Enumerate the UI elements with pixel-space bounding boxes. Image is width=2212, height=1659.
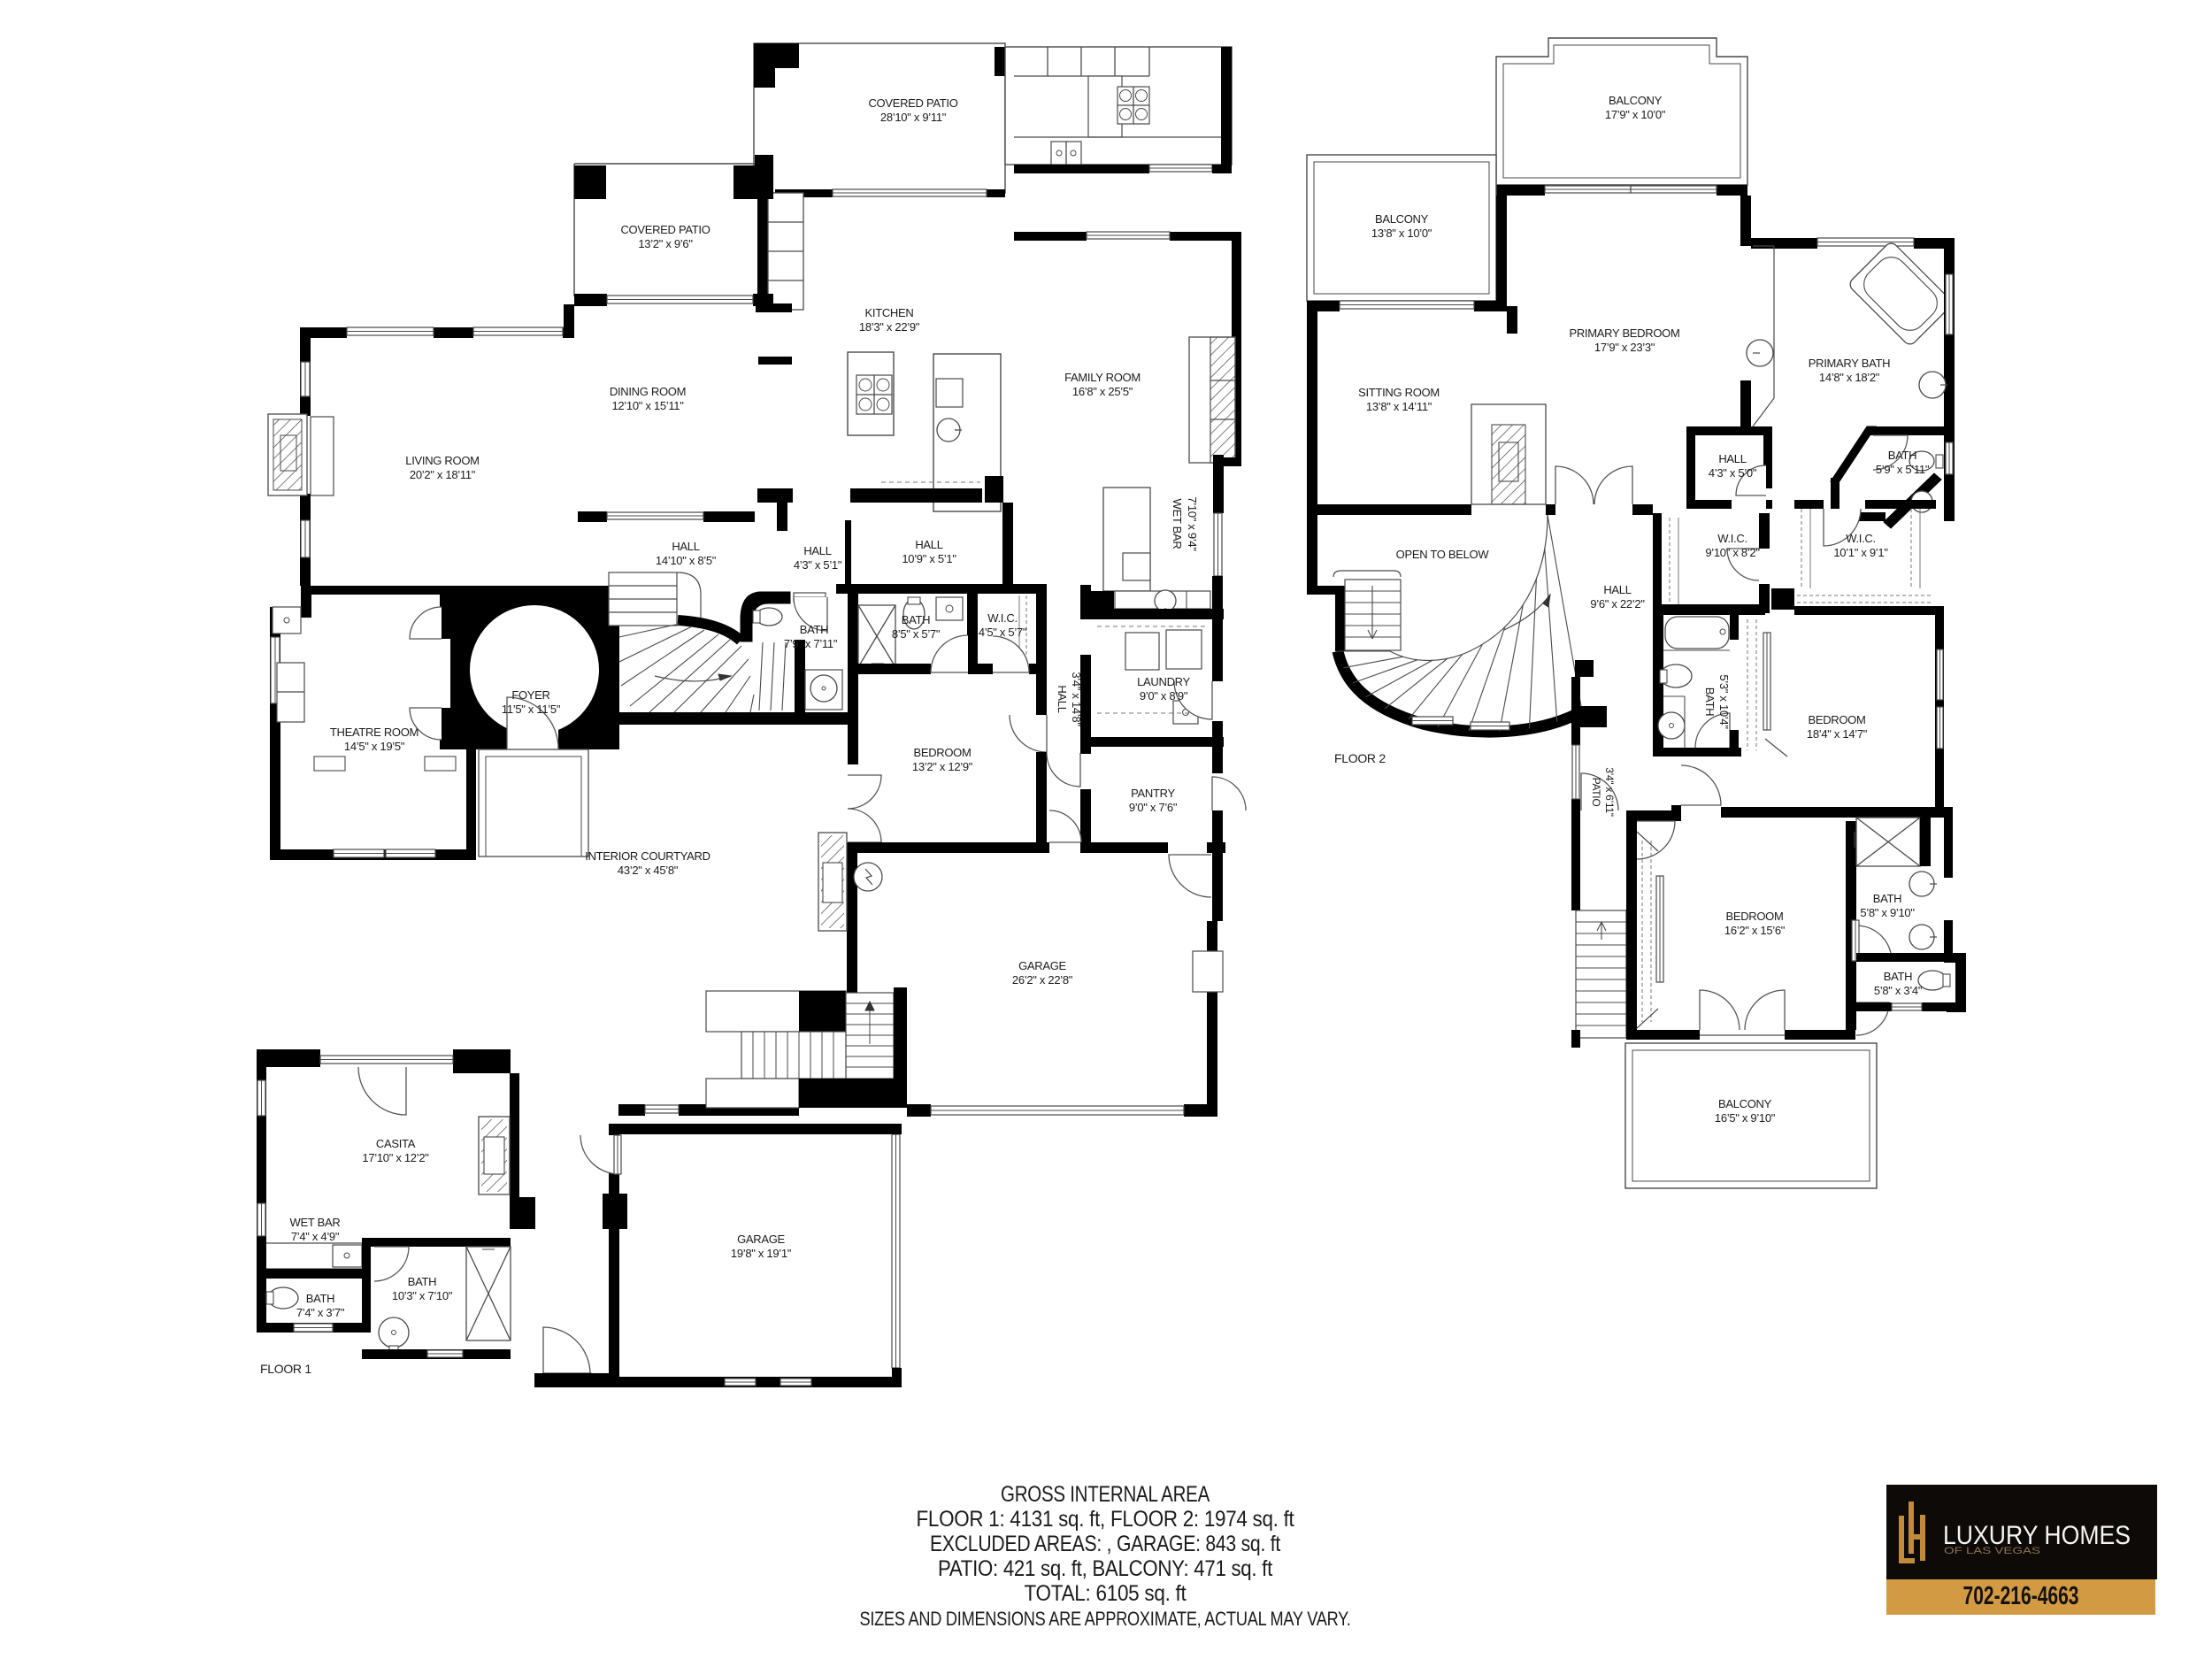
svg-text:BEDROOM: BEDROOM — [1725, 910, 1783, 923]
svg-text:KITCHEN: KITCHEN — [865, 306, 914, 319]
svg-text:BATH: BATH — [800, 623, 829, 636]
svg-text:DINING ROOM: DINING ROOM — [610, 385, 686, 398]
svg-text:FLOOR 1: FLOOR 1 — [260, 1362, 311, 1376]
svg-text:7’9" x 7’11": 7’9" x 7’11" — [784, 637, 838, 650]
svg-text:BATH: BATH — [902, 613, 931, 626]
svg-text:FLOOR 2: FLOOR 2 — [1334, 751, 1386, 765]
svg-text:5’8" x 9’10": 5’8" x 9’10" — [1860, 906, 1915, 919]
svg-text:BALCONY: BALCONY — [1609, 94, 1663, 107]
svg-text:OF LAS VEGAS: OF LAS VEGAS — [1944, 1546, 2040, 1556]
svg-text:20’2" x 18’11": 20’2" x 18’11" — [410, 468, 476, 481]
svg-text:HALL: HALL — [915, 538, 942, 551]
svg-text:14’8" x 18’2": 14’8" x 18’2" — [1819, 371, 1880, 384]
svg-text:7’10" x 9’4": 7’10" x 9’4" — [1186, 496, 1199, 551]
svg-text:5’8" x 3’4": 5’8" x 3’4" — [1874, 984, 1923, 997]
svg-text:EXCLUDED AREAS: , GARAGE: 843: EXCLUDED AREAS: , GARAGE: 843 sq. ft — [930, 1532, 1280, 1556]
svg-text:PRIMARY BEDROOM: PRIMARY BEDROOM — [1569, 326, 1679, 340]
svg-text:16’8" x 25’5": 16’8" x 25’5" — [1072, 385, 1133, 398]
svg-text:13’2" x 12’9": 13’2" x 12’9" — [912, 760, 973, 773]
svg-text:9’0" x 7’6": 9’0" x 7’6" — [1129, 801, 1178, 814]
svg-text:TOTAL: 6105 sq. ft: TOTAL: 6105 sq. ft — [1025, 1581, 1187, 1606]
svg-text:702-216-4663: 702-216-4663 — [1963, 1582, 2079, 1610]
svg-text:FLOOR 1: 4131 sq. ft, FLOOR 2:: FLOOR 1: 4131 sq. ft, FLOOR 2: 1974 sq. … — [917, 1507, 1294, 1532]
svg-text:4’3" x 5’1": 4’3" x 5’1" — [794, 558, 842, 572]
svg-text:18’4" x 14’7": 18’4" x 14’7" — [1807, 727, 1868, 741]
svg-text:COVERED PATIO: COVERED PATIO — [868, 96, 957, 110]
svg-text:SITTING ROOM: SITTING ROOM — [1358, 386, 1440, 399]
svg-text:HALL: HALL — [1056, 685, 1069, 712]
svg-text:28’10" x 9’11": 28’10" x 9’11" — [880, 111, 947, 124]
svg-text:9’6" x 22’2": 9’6" x 22’2" — [1590, 597, 1645, 611]
svg-text:GARAGE: GARAGE — [737, 1233, 785, 1246]
svg-text:11’5" x 11’5": 11’5" x 11’5" — [502, 703, 561, 716]
svg-text:19’8" x 19’1": 19’8" x 19’1" — [731, 1247, 792, 1260]
svg-text:12’10" x 15’11": 12’10" x 15’11" — [611, 399, 684, 412]
svg-text:OPEN TO BELOW: OPEN TO BELOW — [1396, 548, 1490, 561]
svg-text:17’10" x 12’2": 17’10" x 12’2" — [362, 1151, 429, 1164]
svg-text:3’4" x 14’8": 3’4" x 14’8" — [1070, 672, 1083, 726]
svg-text:10’3" x 7’10": 10’3" x 7’10" — [392, 1289, 453, 1302]
svg-text:BATH: BATH — [1884, 970, 1913, 983]
svg-text:INTERIOR COURTYARD: INTERIOR COURTYARD — [585, 849, 710, 863]
svg-text:4’5" x 5’7": 4’5" x 5’7" — [979, 626, 1027, 639]
svg-text:9’0" x 8’9": 9’0" x 8’9" — [1140, 689, 1188, 703]
svg-text:W.I.C.: W.I.C. — [987, 611, 1018, 625]
svg-text:FAMILY ROOM: FAMILY ROOM — [1064, 371, 1141, 384]
svg-text:PATIO: PATIO — [1590, 778, 1602, 807]
svg-text:PANTRY: PANTRY — [1131, 787, 1175, 800]
svg-text:GARAGE: GARAGE — [1018, 959, 1066, 972]
svg-text:GROSS INTERNAL AREA: GROSS INTERNAL AREA — [1001, 1482, 1210, 1507]
svg-text:COVERED PATIO: COVERED PATIO — [620, 223, 710, 236]
svg-text:43’2" x 45’8": 43’2" x 45’8" — [618, 864, 679, 877]
svg-text:8’5" x 5’7": 8’5" x 5’7" — [892, 627, 941, 641]
svg-text:THEATRE ROOM: THEATRE ROOM — [330, 726, 419, 739]
svg-text:17’9" x 10’0": 17’9" x 10’0" — [1605, 108, 1666, 121]
svg-text:BALCONY: BALCONY — [1718, 1097, 1772, 1110]
svg-text:17’9" x 23’3": 17’9" x 23’3" — [1594, 341, 1655, 354]
svg-text:HALL: HALL — [1718, 452, 1746, 465]
svg-text:BATH: BATH — [1888, 449, 1917, 462]
svg-text:5’3" x 10’4": 5’3" x 10’4" — [1717, 674, 1731, 729]
svg-text:18’3" x 22’9": 18’3" x 22’9" — [859, 320, 920, 334]
svg-text:BALCONY: BALCONY — [1375, 212, 1429, 226]
svg-text:SIZES AND DIMENSIONS ARE APPRO: SIZES AND DIMENSIONS ARE APPROXIMATE, AC… — [860, 1608, 1351, 1630]
svg-text:BATH: BATH — [306, 1292, 335, 1305]
svg-text:BATH: BATH — [408, 1275, 437, 1288]
svg-text:10’9" x 5’1": 10’9" x 5’1" — [902, 552, 956, 565]
svg-text:7’4" x 3’7": 7’4" x 3’7" — [296, 1306, 345, 1319]
svg-text:W.I.C.: W.I.C. — [1846, 532, 1876, 545]
svg-text:LAUNDRY: LAUNDRY — [1137, 675, 1190, 688]
svg-text:HALL: HALL — [803, 544, 831, 557]
svg-text:14’10" x 8’5": 14’10" x 8’5" — [656, 554, 717, 567]
svg-text:WET BAR: WET BAR — [1171, 499, 1184, 549]
svg-text:13’8" x 14’11": 13’8" x 14’11" — [1366, 400, 1432, 413]
svg-text:3’4" x 6’11": 3’4" x 6’11" — [1603, 767, 1616, 816]
svg-text:HALL: HALL — [672, 540, 699, 553]
svg-text:14’5" x 19’5": 14’5" x 19’5" — [344, 740, 405, 753]
svg-text:5’9" x 5’11": 5’9" x 5’11" — [1876, 463, 1930, 476]
svg-text:9’10" x 8’2": 9’10" x 8’2" — [1705, 546, 1760, 559]
svg-text:13’8" x 10’0": 13’8" x 10’0" — [1371, 227, 1432, 240]
svg-text:PATIO: 421 sq. ft, BALCONY: 47: PATIO: 421 sq. ft, BALCONY: 471 sq. ft — [938, 1556, 1272, 1581]
svg-text:BATH: BATH — [1873, 892, 1902, 905]
svg-text:4’3" x 5’0": 4’3" x 5’0" — [1709, 466, 1757, 480]
svg-text:PRIMARY BATH: PRIMARY BATH — [1809, 357, 1890, 370]
svg-text:WET BAR: WET BAR — [290, 1216, 341, 1229]
svg-text:13’2" x 9’6": 13’2" x 9’6" — [638, 237, 693, 250]
svg-text:W.I.C.: W.I.C. — [1717, 532, 1747, 545]
svg-text:BEDROOM: BEDROOM — [913, 746, 971, 759]
svg-text:26’2" x 22’8": 26’2" x 22’8" — [1012, 973, 1073, 987]
svg-text:BEDROOM: BEDROOM — [1808, 713, 1865, 726]
svg-text:10’1" x 9’1": 10’1" x 9’1" — [1833, 546, 1888, 559]
svg-text:BATH: BATH — [1703, 687, 1717, 717]
svg-text:CASITA: CASITA — [376, 1137, 416, 1150]
svg-text:HALL: HALL — [1603, 583, 1631, 596]
svg-text:LIVING ROOM: LIVING ROOM — [405, 454, 479, 467]
svg-text:7’4" x 4’9": 7’4" x 4’9" — [291, 1230, 340, 1243]
svg-text:FOYER: FOYER — [511, 688, 549, 702]
svg-text:16’2" x 15’6": 16’2" x 15’6" — [1724, 924, 1786, 937]
svg-text:16’5" x 9’10": 16’5" x 9’10" — [1715, 1111, 1776, 1125]
